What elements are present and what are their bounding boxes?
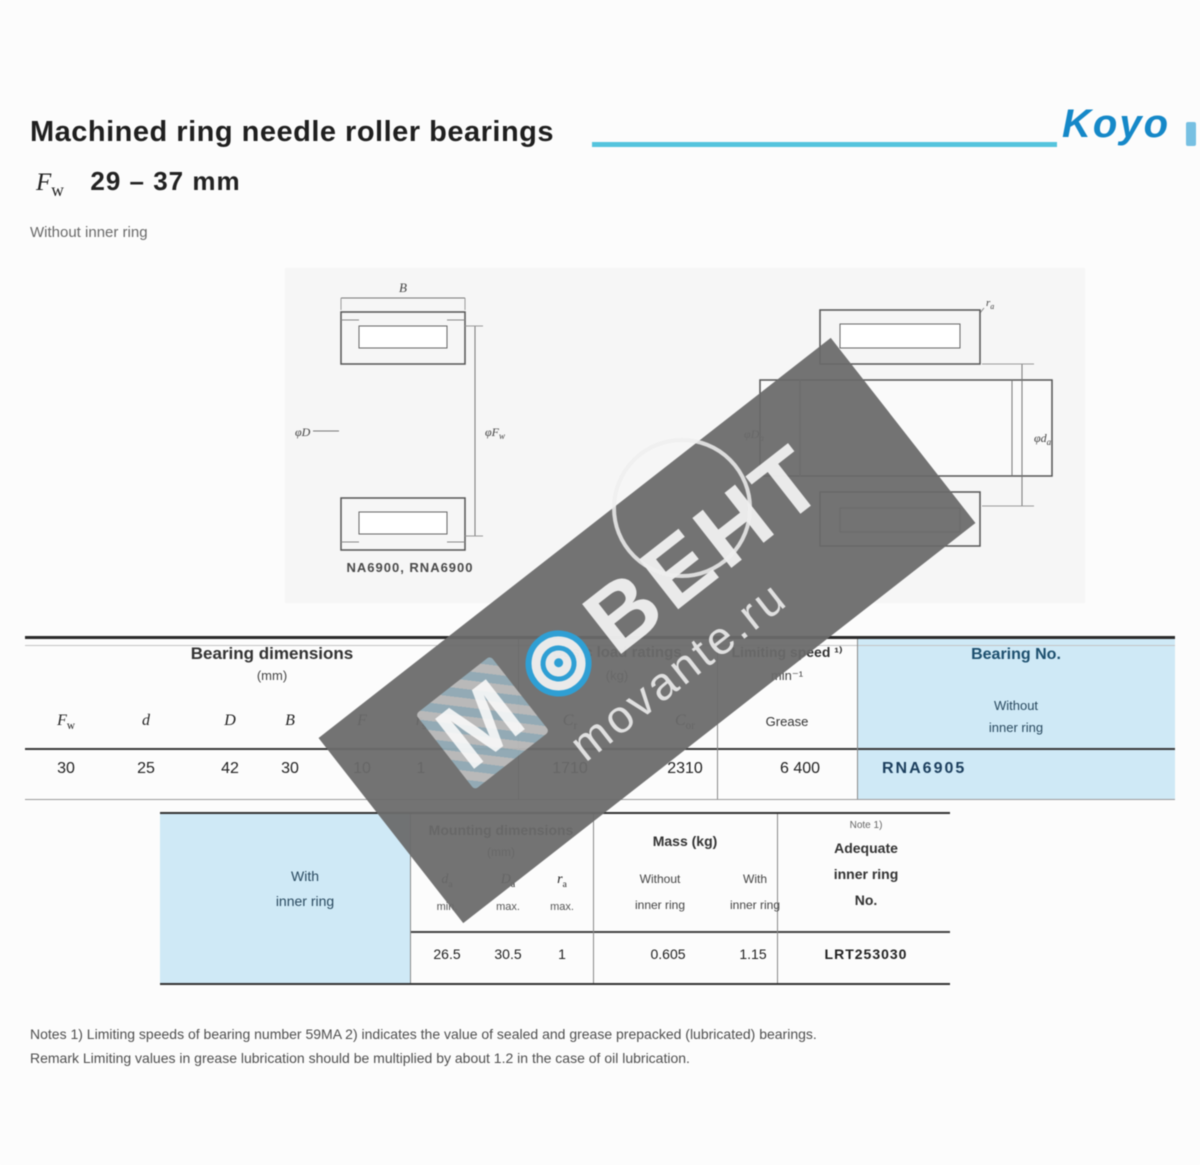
table2-bottom-rule <box>160 983 950 985</box>
limit-label-max1: max. <box>496 901 520 913</box>
dim-b-label: B <box>399 280 407 295</box>
catalog-page: Machined ring needle roller bearings Koy… <box>0 0 1200 1165</box>
bore-symbol: Fw <box>36 169 64 196</box>
mass-col2-line1: With <box>743 872 767 886</box>
col-symbol-D: D <box>224 712 236 732</box>
row-value-d: 25 <box>137 760 155 778</box>
dim-fw-base: φF <box>485 425 500 439</box>
mass-col1-line1: Without <box>640 872 681 886</box>
bore-symbol-sub: w <box>51 180 64 200</box>
row2-value-Da: 30.5 <box>494 946 521 962</box>
ring-header-line2: inner ring <box>834 866 899 882</box>
footnote-line-2: Remark Limiting values in grease lubrica… <box>30 1050 690 1066</box>
limit-label-max2: max. <box>550 901 574 913</box>
side-label-line2: inner ring <box>276 893 334 909</box>
brand-logo: Koyo <box>1062 102 1170 147</box>
watermark-target-ring <box>533 638 584 689</box>
dim-da-base: φd <box>1034 431 1048 445</box>
row-value-cor: 2310 <box>667 760 703 778</box>
watermark-target-icon <box>512 617 605 710</box>
group-mass-title: Mass (kg) <box>653 833 718 849</box>
side-label-line1: With <box>291 868 319 884</box>
symbol-sub: a <box>563 879 567 890</box>
footnote-line-1: Notes 1) Limiting speeds of bearing numb… <box>30 1026 817 1042</box>
symbol-base: d <box>142 712 150 729</box>
table1-divider-3 <box>857 639 858 799</box>
ring-header-line3: No. <box>855 892 878 908</box>
group-bearing-sub2: inner ring <box>989 720 1043 735</box>
col-symbol-ra: ra <box>557 872 567 890</box>
bore-range: Fw 29 – 37 mm <box>36 166 241 201</box>
mass-col2-line2: inner ring <box>730 898 780 912</box>
group-dimensions-title: Bearing dimensions <box>191 644 353 664</box>
symbol-sub: w <box>67 720 75 732</box>
watermark-target-dot <box>552 657 565 670</box>
dim-d-label: φD <box>295 425 311 439</box>
col-symbol-fw: Fw <box>57 712 75 732</box>
ring-note-mark: Note 1) <box>850 820 883 831</box>
group-dimensions-unit: (mm) <box>257 668 287 683</box>
dim-ra-label: ra <box>986 297 994 311</box>
row-value-B: 30 <box>281 760 299 778</box>
diagram-caption: NA6900, RNA6900 <box>346 560 473 575</box>
dim-ra-sub: a <box>990 302 994 311</box>
group-bearing-title: Bearing No. <box>971 646 1061 664</box>
table2-divider-2 <box>593 814 594 983</box>
dim-fw-sub: w <box>499 431 505 441</box>
table2-header-rule <box>410 931 950 933</box>
symbol-base: F <box>57 712 67 729</box>
page-title: Machined ring needle roller bearings <box>30 116 554 149</box>
bore-range-value: 29 – 37 mm <box>90 166 240 196</box>
row2-inner-ring-number: LRT253030 <box>825 946 908 962</box>
logo-cut-mark <box>1186 122 1196 146</box>
row2-value-da: 26.5 <box>433 946 460 962</box>
ring-header-line1: Adequate <box>834 840 898 856</box>
symbol-base: B <box>285 712 295 729</box>
title-rule <box>592 142 1057 147</box>
row2-value-ra: 1 <box>558 946 566 962</box>
mass-col1-line2: inner ring <box>635 898 685 912</box>
group-bearing-sub1: Without <box>994 698 1038 713</box>
col-symbol-B: B <box>285 712 295 732</box>
watermark-circle-outline <box>612 438 752 578</box>
col-symbol-d: d <box>142 712 150 732</box>
row2-mass-with: 1.15 <box>739 946 766 962</box>
variant-label: Without inner ring <box>30 224 148 241</box>
row2-mass-without: 0.605 <box>650 946 685 962</box>
row-value-D: 42 <box>221 760 239 778</box>
group-speed-sub: Grease <box>766 714 809 729</box>
row-value-speed: 6 400 <box>780 760 820 778</box>
bore-symbol-base: F <box>36 169 51 196</box>
dim-fw-label: φFw <box>485 425 505 441</box>
symbol-base: D <box>224 712 236 729</box>
row-value-fw: 30 <box>57 760 75 778</box>
dim-da-sub: a <box>1047 437 1052 447</box>
row-bearing-number: RNA6905 <box>882 760 966 778</box>
bearing-cross-section-diagram: B φD φFw <box>293 280 528 580</box>
